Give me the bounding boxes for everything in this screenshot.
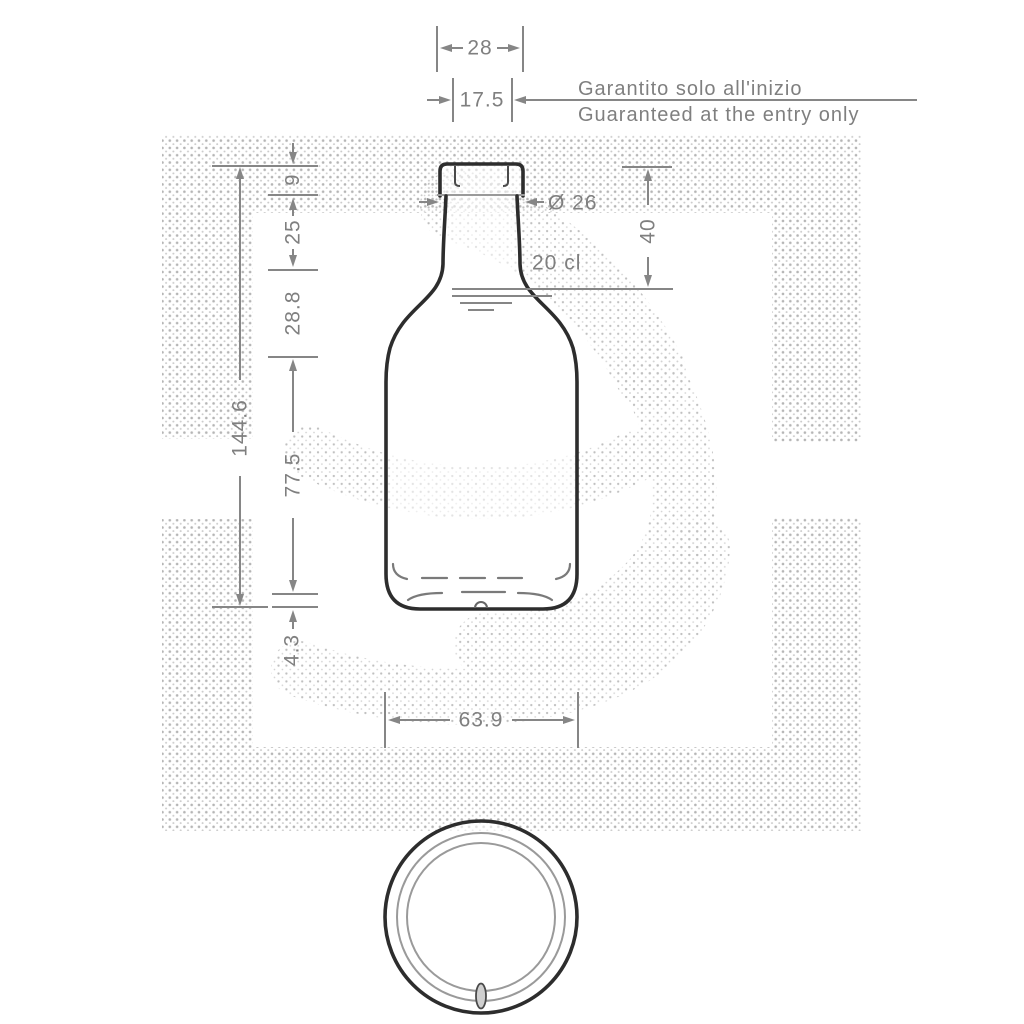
caption-english: Guaranteed at the entry only (578, 104, 860, 126)
capacity-label: 20 cl (532, 252, 581, 275)
bottle-technical-drawing: 28 17.5 Garantito solo all'inizio Guaran… (0, 0, 1024, 1024)
halftone-bottom-band (162, 747, 861, 831)
dim-body-height: 77.5 (282, 359, 305, 592)
dim-base-height: 4.3 (281, 610, 304, 666)
dim-label-neck-height: 25 (282, 219, 305, 244)
bottle-lip-fill (440, 164, 523, 196)
dim-label-fill-depth: 40 (637, 218, 660, 243)
finish-captions: Garantito solo all'inizio Guaranteed at … (578, 78, 860, 126)
bottom-view-seam-lens (476, 984, 486, 1009)
caption-italian: Garantito solo all'inizio (578, 78, 802, 100)
halftone-right-band-upper (772, 213, 861, 442)
dim-label-total-height: 144.6 (229, 399, 252, 457)
dim-label-body-height: 77.5 (282, 453, 305, 498)
dim-label-bore: 17.5 (460, 89, 505, 112)
dim-label-body-diameter: 63.9 (459, 709, 504, 732)
dim-shoulder-height: 28.8 (282, 291, 305, 336)
dim-label-base-height: 4.3 (281, 634, 304, 666)
dim-label-shoulder-height: 28.8 (282, 291, 305, 336)
dim-label-finish-width: 28 (467, 37, 492, 60)
dim-label-neck-diameter: Ø 26 (548, 192, 598, 215)
bottle-bottom-view (385, 821, 577, 1013)
halftone-right-band-lower (772, 518, 861, 747)
dim-label-lip-height: 9 (282, 174, 304, 185)
dim-finish-width: 28 (437, 26, 523, 72)
bottle-technical-drawing-page: 28 17.5 Garantito solo all'inizio Guaran… (0, 0, 1024, 1024)
